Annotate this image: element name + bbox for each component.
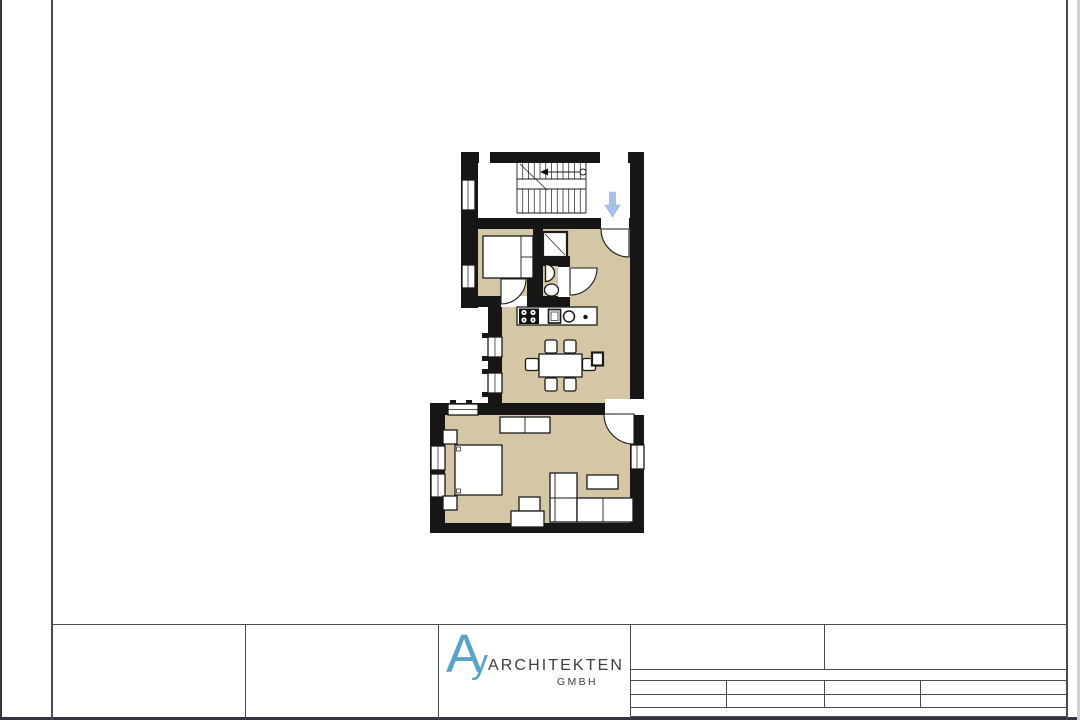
window-living-right bbox=[631, 445, 644, 469]
chair bbox=[526, 359, 539, 371]
floor-plan bbox=[420, 145, 655, 543]
titleblock-row-line-1 bbox=[630, 669, 1067, 670]
upper-bedroom bbox=[483, 236, 533, 278]
company-logo: A y ARCHITEKTEN GMBH bbox=[444, 636, 604, 694]
page-edge-left bbox=[0, 0, 2, 720]
chair bbox=[564, 378, 576, 391]
chair bbox=[564, 340, 576, 353]
window-jamb-1 bbox=[482, 333, 488, 338]
stove bbox=[519, 309, 539, 325]
kitchen-round-sink bbox=[564, 311, 575, 322]
opening-top-right bbox=[600, 152, 628, 163]
titleblock-divider-3 bbox=[630, 624, 631, 720]
shower bbox=[543, 232, 567, 257]
titleblock-cell-divider-2 bbox=[824, 680, 825, 708]
opening-top-left bbox=[479, 152, 490, 163]
wardrobe bbox=[500, 417, 550, 433]
window-jamb-2 bbox=[482, 356, 488, 361]
titleblock-row-line-4 bbox=[630, 707, 1067, 708]
window-bedroom-left bbox=[462, 265, 475, 288]
toilet bbox=[545, 284, 559, 296]
window-kitchen-1 bbox=[488, 337, 502, 357]
entrance-down-arrow-icon bbox=[605, 192, 620, 217]
wall-right bbox=[630, 152, 644, 533]
titleblock-divider-2 bbox=[438, 624, 439, 720]
titleblock-cell-divider-3 bbox=[920, 680, 921, 708]
stairs bbox=[517, 163, 586, 213]
titleblock-row-line-3 bbox=[630, 694, 1067, 695]
chair bbox=[545, 378, 557, 391]
logo-mark-y: y bbox=[471, 645, 488, 679]
window-living-left-2 bbox=[431, 474, 445, 497]
coffee-table bbox=[587, 475, 618, 489]
wall-bedroom-bottom-right bbox=[527, 296, 570, 307]
titleblock-row-line-5 bbox=[630, 716, 1067, 717]
window-jamb-4 bbox=[482, 392, 488, 397]
counter-fixture-dot bbox=[583, 315, 587, 319]
titleblock-top-line bbox=[51, 624, 1068, 625]
titleblock-divider-1 bbox=[245, 624, 246, 720]
window-jamb-3 bbox=[482, 369, 488, 374]
sheet-frame-right bbox=[1066, 0, 1068, 720]
bed-double bbox=[455, 445, 502, 495]
titleblock-cell-divider-1 bbox=[726, 680, 727, 708]
titleblock-divider-top-mid bbox=[824, 624, 825, 669]
stair-break-line bbox=[520, 164, 547, 190]
window-living-top bbox=[448, 404, 478, 415]
door-gap-living bbox=[605, 399, 644, 415]
side-table bbox=[511, 511, 544, 527]
kitchen bbox=[517, 307, 597, 325]
door-gap-hallway bbox=[601, 218, 629, 229]
logo-company-name: ARCHITEKTEN bbox=[488, 657, 624, 675]
window-kitchen-2 bbox=[488, 373, 502, 393]
radiator bbox=[592, 353, 603, 366]
dining-table bbox=[539, 354, 582, 377]
window-living-left-1 bbox=[431, 446, 445, 470]
sheet-frame-left bbox=[51, 0, 53, 720]
nightstand bbox=[443, 496, 457, 510]
nightstand bbox=[443, 430, 457, 444]
chair bbox=[545, 340, 557, 353]
door-gap-bathroom bbox=[558, 267, 570, 297]
kitchen-sink-unit bbox=[549, 310, 561, 324]
window-stairwell-left bbox=[462, 180, 475, 210]
titleblock-row-line-2 bbox=[630, 680, 1067, 681]
logo-suffix: GMBH bbox=[444, 676, 598, 688]
side-table-small bbox=[519, 497, 540, 511]
stairwell bbox=[517, 163, 620, 217]
